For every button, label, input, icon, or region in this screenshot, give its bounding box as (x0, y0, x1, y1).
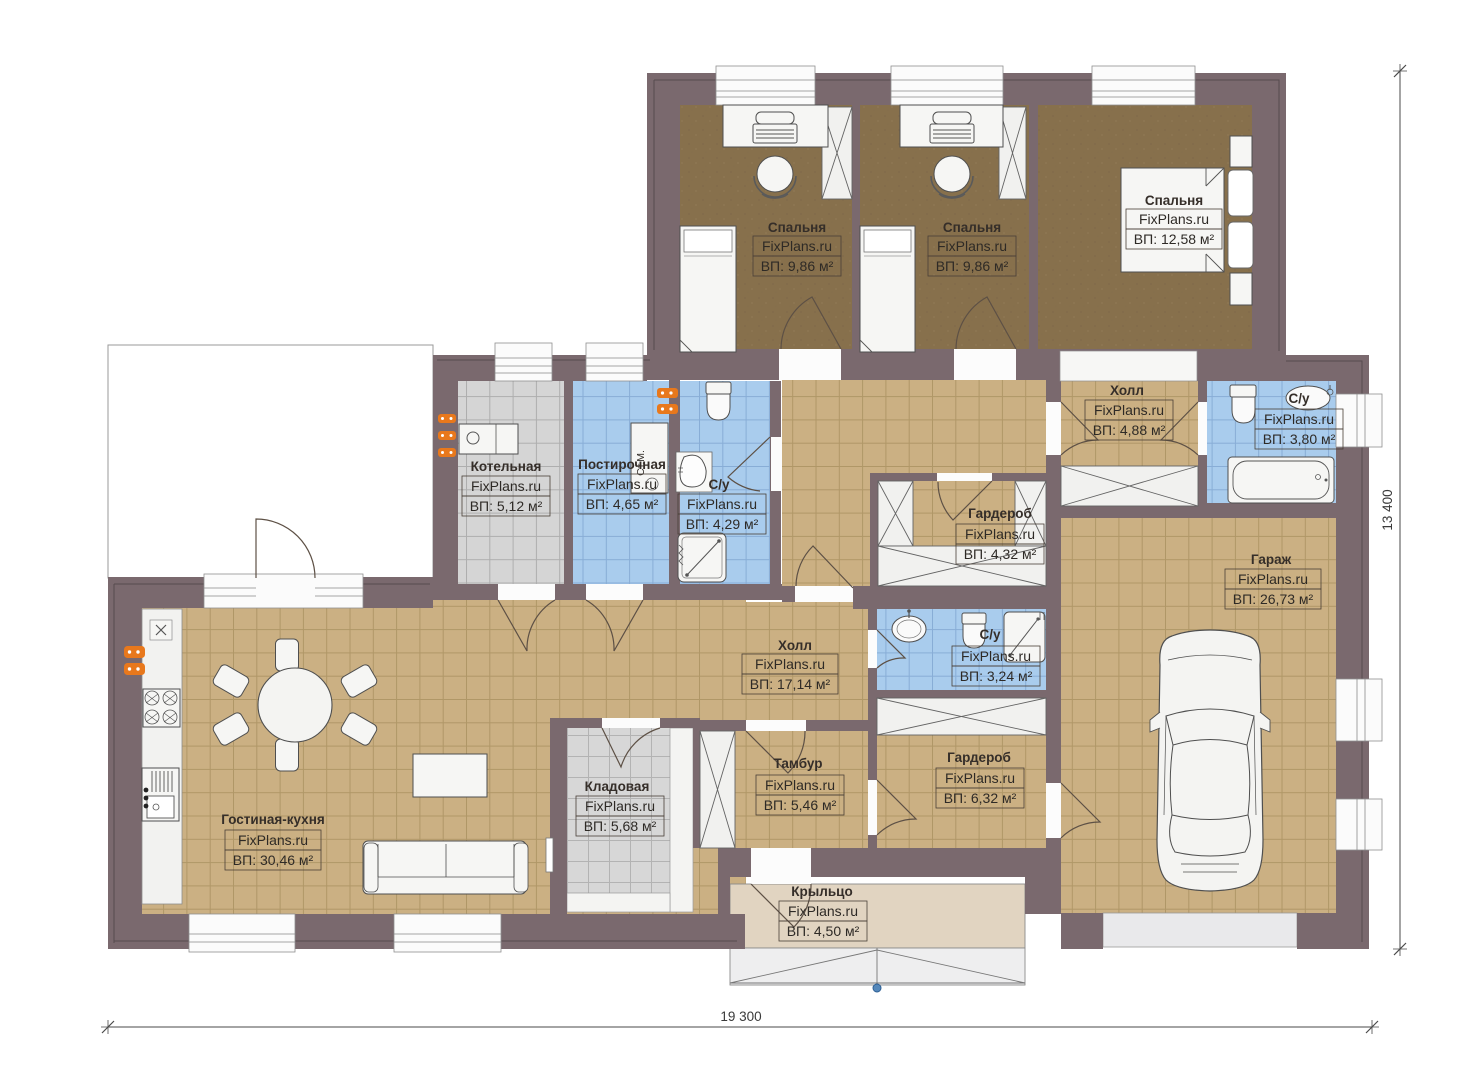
svg-text:ВП: 5,12 м²: ВП: 5,12 м² (470, 498, 543, 514)
svg-text:ВП: 17,14 м²: ВП: 17,14 м² (750, 676, 831, 692)
svg-text:Гараж: Гараж (1251, 552, 1292, 567)
svg-text:FixPlans.ru: FixPlans.ru (965, 526, 1035, 542)
svg-text:ВП: 30,46 м²: ВП: 30,46 м² (233, 852, 314, 868)
svg-text:FixPlans.ru: FixPlans.ru (585, 798, 655, 814)
svg-text:ВП: 5,46 м²: ВП: 5,46 м² (764, 797, 837, 813)
svg-text:С/у: С/у (979, 627, 1001, 642)
svg-text:Спальня: Спальня (1145, 193, 1203, 208)
svg-text:Спальня: Спальня (768, 220, 826, 235)
svg-text:ВП: 3,24 м²: ВП: 3,24 м² (960, 668, 1033, 684)
svg-text:Постирочная: Постирочная (578, 457, 666, 472)
svg-text:FixPlans.ru: FixPlans.ru (788, 903, 858, 919)
svg-text:ВП: 4,32 м²: ВП: 4,32 м² (964, 546, 1037, 562)
svg-text:ВП: 4,50 м²: ВП: 4,50 м² (787, 923, 860, 939)
svg-text:ВП: 5,68 м²: ВП: 5,68 м² (584, 818, 657, 834)
svg-text:FixPlans.ru: FixPlans.ru (687, 496, 757, 512)
svg-text:ВП: 4,88 м²: ВП: 4,88 м² (1093, 422, 1166, 438)
svg-text:FixPlans.ru: FixPlans.ru (755, 656, 825, 672)
svg-text:FixPlans.ru: FixPlans.ru (1238, 571, 1308, 587)
svg-text:ВП: 6,32 м²: ВП: 6,32 м² (944, 790, 1017, 806)
svg-text:19 300: 19 300 (720, 1009, 761, 1024)
svg-text:FixPlans.ru: FixPlans.ru (238, 832, 308, 848)
svg-text:Тамбур: Тамбур (774, 756, 823, 771)
svg-text:ВП: 9,86 м²: ВП: 9,86 м² (761, 258, 834, 274)
svg-text:FixPlans.ru: FixPlans.ru (937, 238, 1007, 254)
svg-text:ВП: 4,29 м²: ВП: 4,29 м² (686, 516, 759, 532)
svg-text:Кладовая: Кладовая (585, 779, 650, 794)
svg-text:FixPlans.ru: FixPlans.ru (961, 648, 1031, 664)
svg-text:С/у: С/у (708, 477, 730, 492)
svg-text:FixPlans.ru: FixPlans.ru (1264, 411, 1334, 427)
svg-text:Гардероб: Гардероб (947, 750, 1011, 765)
svg-text:FixPlans.ru: FixPlans.ru (762, 238, 832, 254)
svg-text:ВП: 3,80 м²: ВП: 3,80 м² (1263, 431, 1336, 447)
svg-text:ВП: 26,73 м²: ВП: 26,73 м² (1233, 591, 1314, 607)
svg-text:Холл: Холл (1110, 383, 1144, 398)
svg-text:Гостиная-кухня: Гостиная-кухня (221, 812, 324, 827)
svg-text:FixPlans.ru: FixPlans.ru (587, 476, 657, 492)
svg-text:Котельная: Котельная (471, 459, 542, 474)
svg-text:FixPlans.ru: FixPlans.ru (765, 777, 835, 793)
svg-text:13 400: 13 400 (1380, 489, 1395, 530)
svg-text:FixPlans.ru: FixPlans.ru (471, 478, 541, 494)
svg-text:ВП: 9,86 м²: ВП: 9,86 м² (936, 258, 1009, 274)
svg-text:FixPlans.ru: FixPlans.ru (1139, 211, 1209, 227)
svg-text:FixPlans.ru: FixPlans.ru (1094, 402, 1164, 418)
svg-text:Холл: Холл (778, 638, 812, 653)
svg-text:С/у: С/у (1288, 391, 1310, 406)
svg-text:ВП: 12,58 м²: ВП: 12,58 м² (1134, 231, 1215, 247)
svg-text:Крыльцо: Крыльцо (791, 884, 852, 899)
svg-text:Гардероб: Гардероб (968, 506, 1032, 521)
svg-text:Спальня: Спальня (943, 220, 1001, 235)
svg-text:ВП: 4,65 м²: ВП: 4,65 м² (586, 496, 659, 512)
svg-text:FixPlans.ru: FixPlans.ru (945, 770, 1015, 786)
